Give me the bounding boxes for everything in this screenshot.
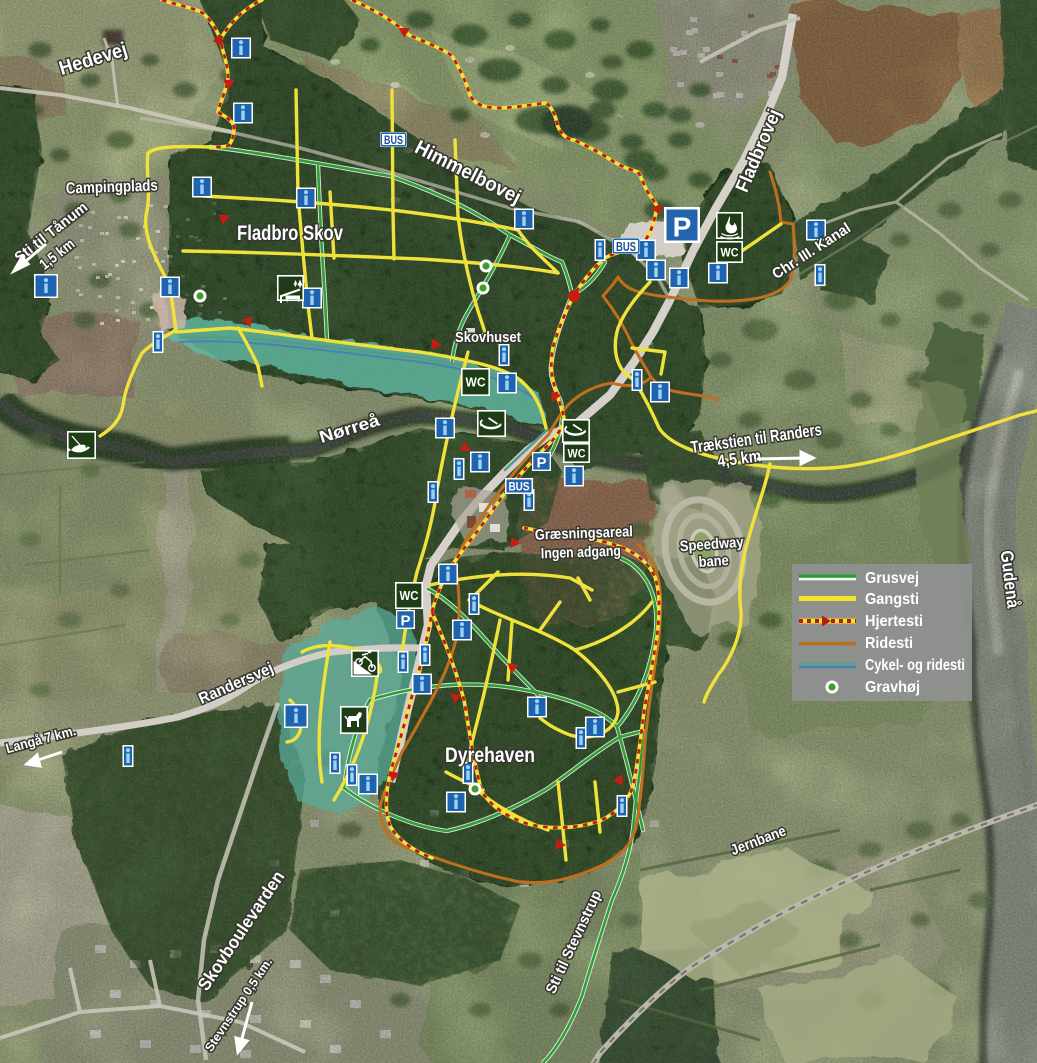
svg-text:P: P	[400, 613, 410, 630]
svg-text:Græsningsareal: Græsningsareal	[535, 523, 634, 543]
svg-text:bane: bane	[698, 552, 729, 571]
svg-text:BUS: BUS	[384, 133, 403, 147]
svg-text:WC: WC	[400, 588, 420, 603]
svg-text:P: P	[673, 212, 692, 243]
svg-text:Cykel- og ridesti: Cykel- og ridesti	[865, 657, 965, 674]
svg-text:Skovhuset: Skovhuset	[455, 329, 521, 346]
svg-text:WC: WC	[466, 375, 487, 390]
svg-text:Grusvej: Grusvej	[865, 570, 919, 587]
svg-text:Fladbro Skov: Fladbro Skov	[237, 222, 343, 245]
svg-text:Gangsti: Gangsti	[865, 591, 919, 608]
svg-text:Campingplads: Campingplads	[66, 177, 159, 197]
svg-text:BUS: BUS	[509, 480, 530, 494]
svg-text:Dyrehaven: Dyrehaven	[445, 744, 535, 767]
svg-text:WC: WC	[568, 446, 586, 460]
svg-text:BUS: BUS	[616, 239, 636, 254]
svg-text:P: P	[536, 455, 546, 472]
svg-text:Ingen adgang: Ingen adgang	[541, 543, 622, 563]
svg-text:Ridesti: Ridesti	[865, 635, 913, 652]
svg-text:Gravhøj: Gravhøj	[865, 679, 920, 696]
svg-text:Hjertesti: Hjertesti	[865, 613, 923, 630]
svg-text:WC: WC	[721, 245, 739, 259]
